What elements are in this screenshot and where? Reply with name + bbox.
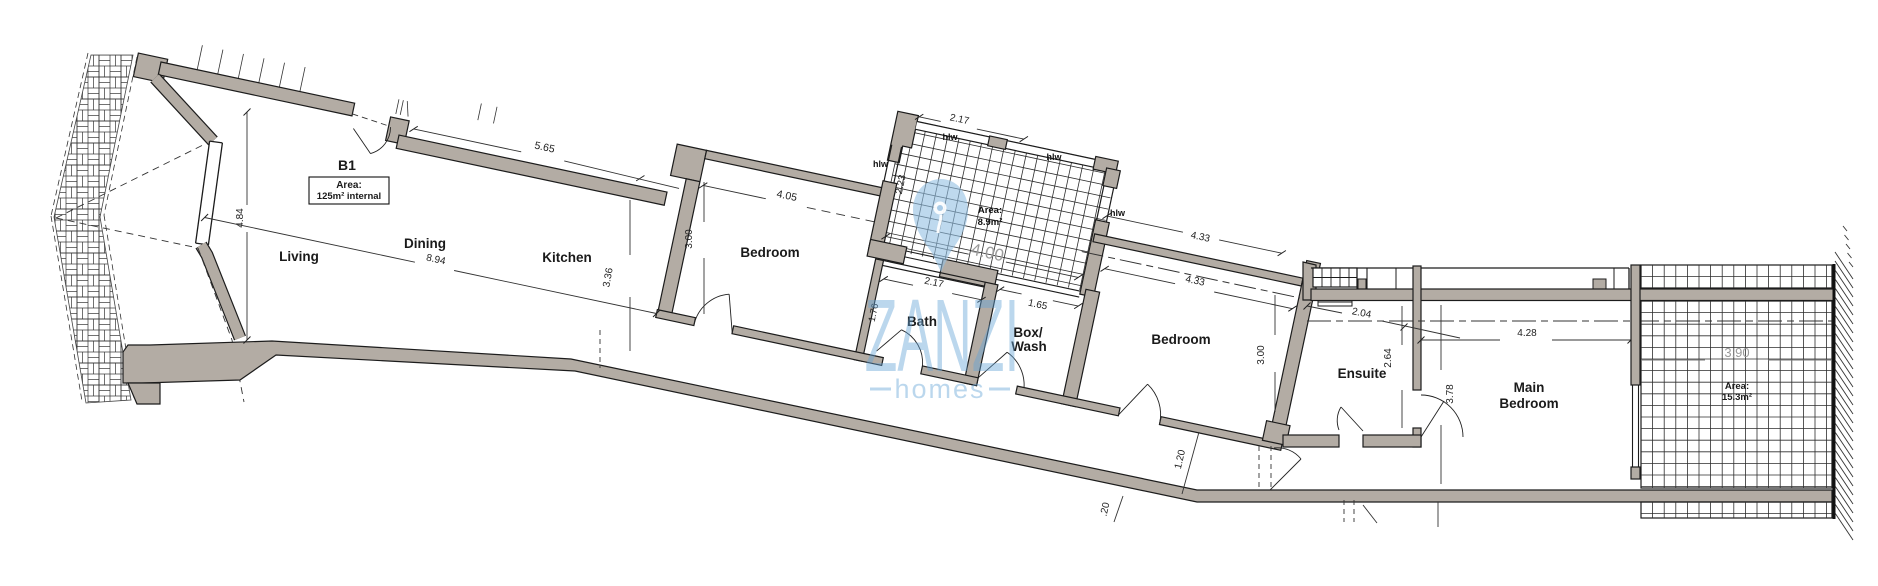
svg-text:Bedroom: Bedroom — [1151, 332, 1210, 347]
svg-text:Ensuite: Ensuite — [1338, 366, 1387, 381]
svg-text:3.90: 3.90 — [1724, 345, 1749, 360]
svg-text:3.78: 3.78 — [1445, 384, 1456, 404]
svg-text:4.28: 4.28 — [1517, 328, 1537, 339]
svg-text:5.65: 5.65 — [533, 140, 556, 156]
svg-text:homes: homes — [894, 374, 985, 404]
svg-text:4.33: 4.33 — [1184, 274, 1206, 289]
svg-text:Bedroom: Bedroom — [740, 245, 799, 260]
svg-text:Kitchen: Kitchen — [542, 250, 592, 265]
svg-text:B1: B1 — [338, 157, 356, 173]
svg-text:15.3m²: 15.3m² — [1722, 392, 1752, 403]
svg-text:hlw: hlw — [1047, 152, 1063, 162]
svg-text:hlw: hlw — [873, 159, 889, 169]
svg-text:Dining: Dining — [404, 236, 446, 251]
svg-text:.20: .20 — [1099, 501, 1113, 517]
svg-text:3.36: 3.36 — [601, 267, 615, 289]
svg-text:2.64: 2.64 — [1383, 348, 1394, 368]
svg-text:Area:: Area: — [978, 205, 1002, 216]
svg-text:3.00: 3.00 — [1256, 345, 1267, 365]
svg-text:Area:: Area: — [1725, 381, 1749, 392]
svg-text:Area:: Area: — [336, 180, 362, 191]
svg-text:4.33: 4.33 — [1190, 230, 1212, 245]
svg-text:4.00: 4.00 — [969, 240, 1005, 265]
svg-text:1.65: 1.65 — [1027, 298, 1049, 313]
svg-text:8.94: 8.94 — [425, 253, 447, 268]
svg-text:Living: Living — [279, 249, 319, 264]
svg-text:hlw: hlw — [1110, 208, 1126, 218]
svg-text:3.00: 3.00 — [684, 229, 695, 249]
svg-text:Main: Main — [1514, 380, 1545, 395]
svg-text:125m² internal: 125m² internal — [317, 191, 381, 202]
svg-text:hlw: hlw — [943, 132, 959, 142]
svg-text:2.23: 2.23 — [894, 173, 909, 195]
svg-text:4.05: 4.05 — [776, 188, 799, 204]
svg-text:2.04: 2.04 — [1351, 306, 1373, 321]
svg-text:1.20: 1.20 — [1173, 448, 1188, 470]
svg-text:2.17: 2.17 — [949, 112, 971, 127]
svg-text:8.9m²: 8.9m² — [978, 217, 1003, 228]
svg-text:Bedroom: Bedroom — [1499, 396, 1558, 411]
